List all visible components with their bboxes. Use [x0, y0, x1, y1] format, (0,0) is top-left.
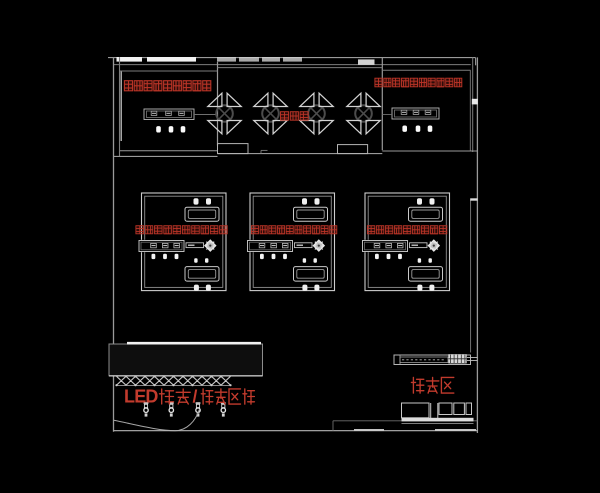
svg-text:LED: LED [124, 387, 158, 407]
svg-text:/: / [193, 387, 198, 407]
